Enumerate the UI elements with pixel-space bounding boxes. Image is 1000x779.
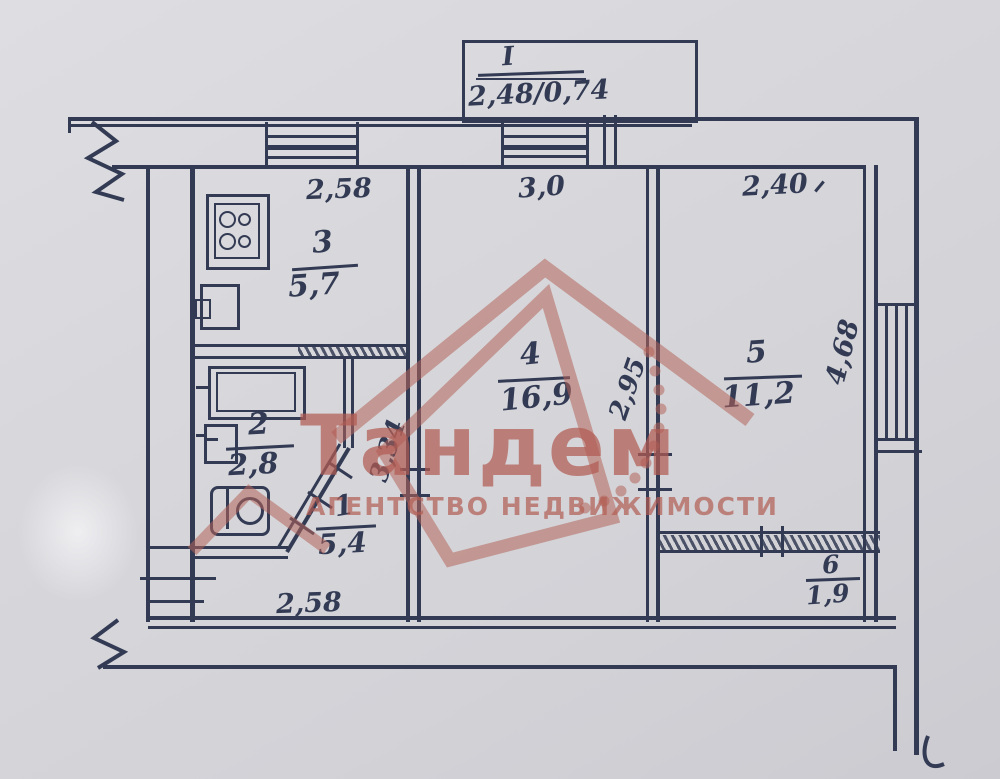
room6-tick-a	[760, 526, 763, 557]
wall-bath-bottom-a	[146, 546, 288, 549]
wall-room4-room5-b	[656, 165, 660, 622]
room1-area: 5,4	[317, 529, 367, 560]
bathtub-tap	[196, 386, 208, 389]
window-room4-line1	[501, 135, 589, 138]
wall-room5-room6-hatch	[658, 535, 880, 550]
watermark-brand: Тандем	[300, 404, 678, 488]
wall-bottom-apartment-a	[148, 616, 896, 620]
wall-bottom-outer-corner	[893, 665, 897, 751]
wall-kitchen-hall-a	[406, 165, 410, 622]
window-room4-line3	[501, 155, 589, 158]
wall-room4-room5-a	[646, 165, 649, 622]
bathtub-inner	[216, 372, 296, 412]
toilet-tank-divider	[226, 487, 229, 529]
break-mark-top-left	[88, 122, 124, 200]
watermark-subtitle: АГЕНТСТВО НЕДВИЖИМОСТИ	[306, 494, 779, 519]
break-mark-bottom-left	[94, 620, 124, 668]
stove-inner	[214, 203, 260, 259]
kitchen-sink-tap	[195, 299, 211, 319]
window-kitchen-line1	[265, 135, 359, 138]
room2-area: 2,8	[227, 449, 279, 481]
room3-area: 5,7	[287, 269, 341, 303]
wall-top-endcap	[68, 117, 71, 133]
dim-bottom: 2,58	[276, 589, 343, 618]
entry-door-tick-low	[146, 600, 204, 603]
stove-burner-2	[238, 213, 251, 226]
wall-right-inner-a	[863, 165, 866, 622]
correction-blotch	[18, 462, 138, 602]
wall-left-outer	[146, 168, 150, 622]
wall-left-inner	[190, 165, 195, 622]
window-kitchen-line3	[265, 156, 359, 159]
dim-room4-top: 3,0	[517, 172, 566, 202]
room6-number: 6	[821, 552, 840, 578]
washbasin-tap	[196, 434, 204, 437]
wall-right-outer	[914, 117, 919, 755]
dim-kitchen-top: 2,58	[306, 175, 373, 204]
room6-tick-b	[781, 526, 784, 557]
wall-top-outer	[68, 117, 916, 121]
room4-number: 4	[518, 339, 542, 371]
room5-number: 5	[745, 337, 768, 368]
stove-burner-1	[219, 211, 236, 228]
balcony-door-jamb-right	[614, 115, 617, 168]
wall-kitchen-hall-b	[417, 165, 421, 622]
toilet-bowl	[236, 497, 264, 525]
wall-bottom-outer	[103, 665, 897, 669]
window-room5-line2	[895, 306, 898, 440]
room2-number: 2	[247, 409, 269, 440]
wall-bath-bottom-b	[192, 556, 288, 559]
window-kitchen-line2	[265, 145, 359, 150]
wall-room5-room6-b	[658, 550, 880, 553]
stove-burner-4	[238, 235, 251, 248]
window-room4-line2	[501, 145, 589, 150]
balcony-door-jamb-left	[603, 115, 606, 168]
window-room5-line1	[885, 306, 888, 440]
wall-bottom-apartment-b	[148, 626, 896, 629]
window-room5-line3	[905, 306, 908, 440]
balcony-dimensions: 2,48/0,74	[467, 76, 610, 110]
room6-area: 1,9	[805, 581, 850, 609]
floor-plan-scan: I 2,48/0,74	[0, 0, 1000, 779]
wall-right-inner-b	[874, 165, 878, 622]
balcony-numeral: I	[501, 44, 515, 71]
dim-room5-top: 2,40	[741, 170, 808, 200]
wall-top-inner	[112, 165, 865, 169]
wall-top-outer-inner-line	[68, 124, 692, 127]
washbasin-mark	[206, 438, 218, 441]
break-mark-bottom-right	[925, 736, 944, 766]
entry-door-tick-mid	[140, 577, 216, 580]
room3-number: 3	[311, 227, 334, 259]
room5-area: 11,2	[721, 378, 796, 413]
dim-room5-top-tick	[814, 181, 825, 193]
stove-burner-3	[219, 233, 236, 250]
kitchen-door-hatch	[298, 345, 408, 359]
wall-room5-room6-a	[658, 531, 880, 534]
window-room5-ledge	[876, 450, 922, 453]
